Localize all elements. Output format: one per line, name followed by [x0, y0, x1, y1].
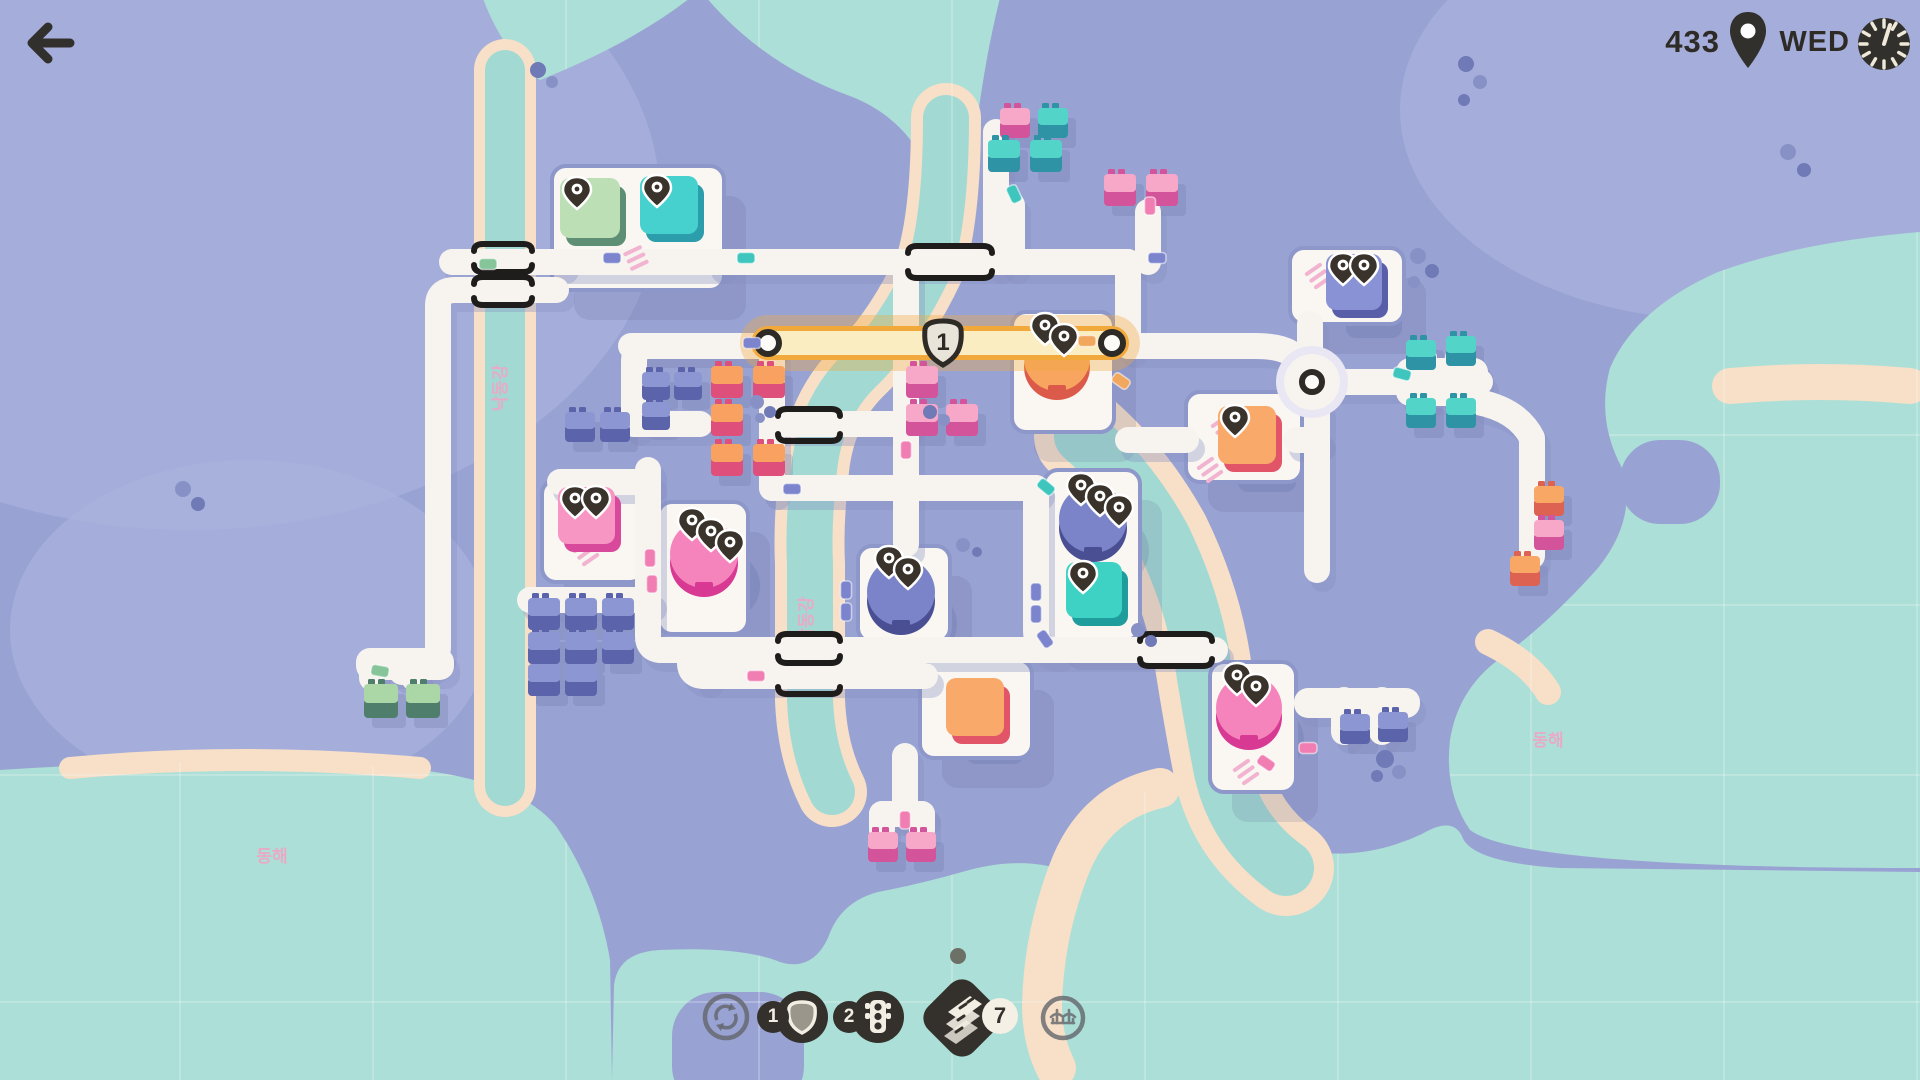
map-pin-icon	[1728, 10, 1768, 72]
roundabout	[1276, 346, 1348, 418]
roundabout-tool-button[interactable]	[702, 993, 750, 1041]
svg-text:동해: 동해	[256, 847, 287, 866]
svg-text:낙동강: 낙동강	[491, 364, 510, 411]
day-label: WED	[1779, 26, 1850, 59]
svg-text:동해: 동해	[1532, 731, 1563, 750]
motorway-count-badge: 1	[757, 1001, 789, 1033]
game-screen: 동해동해낙동강낙동강1 433 WED 1	[0, 0, 1920, 1080]
game-map[interactable]: 동해동해낙동강낙동강1	[0, 0, 1920, 1080]
bridge-tool-button[interactable]	[1040, 995, 1086, 1041]
traffic-light-count-badge: 2	[833, 1001, 865, 1033]
page-indicator-dot[interactable]	[950, 948, 966, 964]
day-clock-icon	[1856, 16, 1912, 72]
svg-text:1: 1	[936, 329, 949, 356]
road-tiles-count-badge: 7	[982, 998, 1018, 1034]
pin-count: 433	[1665, 24, 1720, 60]
back-button[interactable]	[24, 20, 76, 66]
